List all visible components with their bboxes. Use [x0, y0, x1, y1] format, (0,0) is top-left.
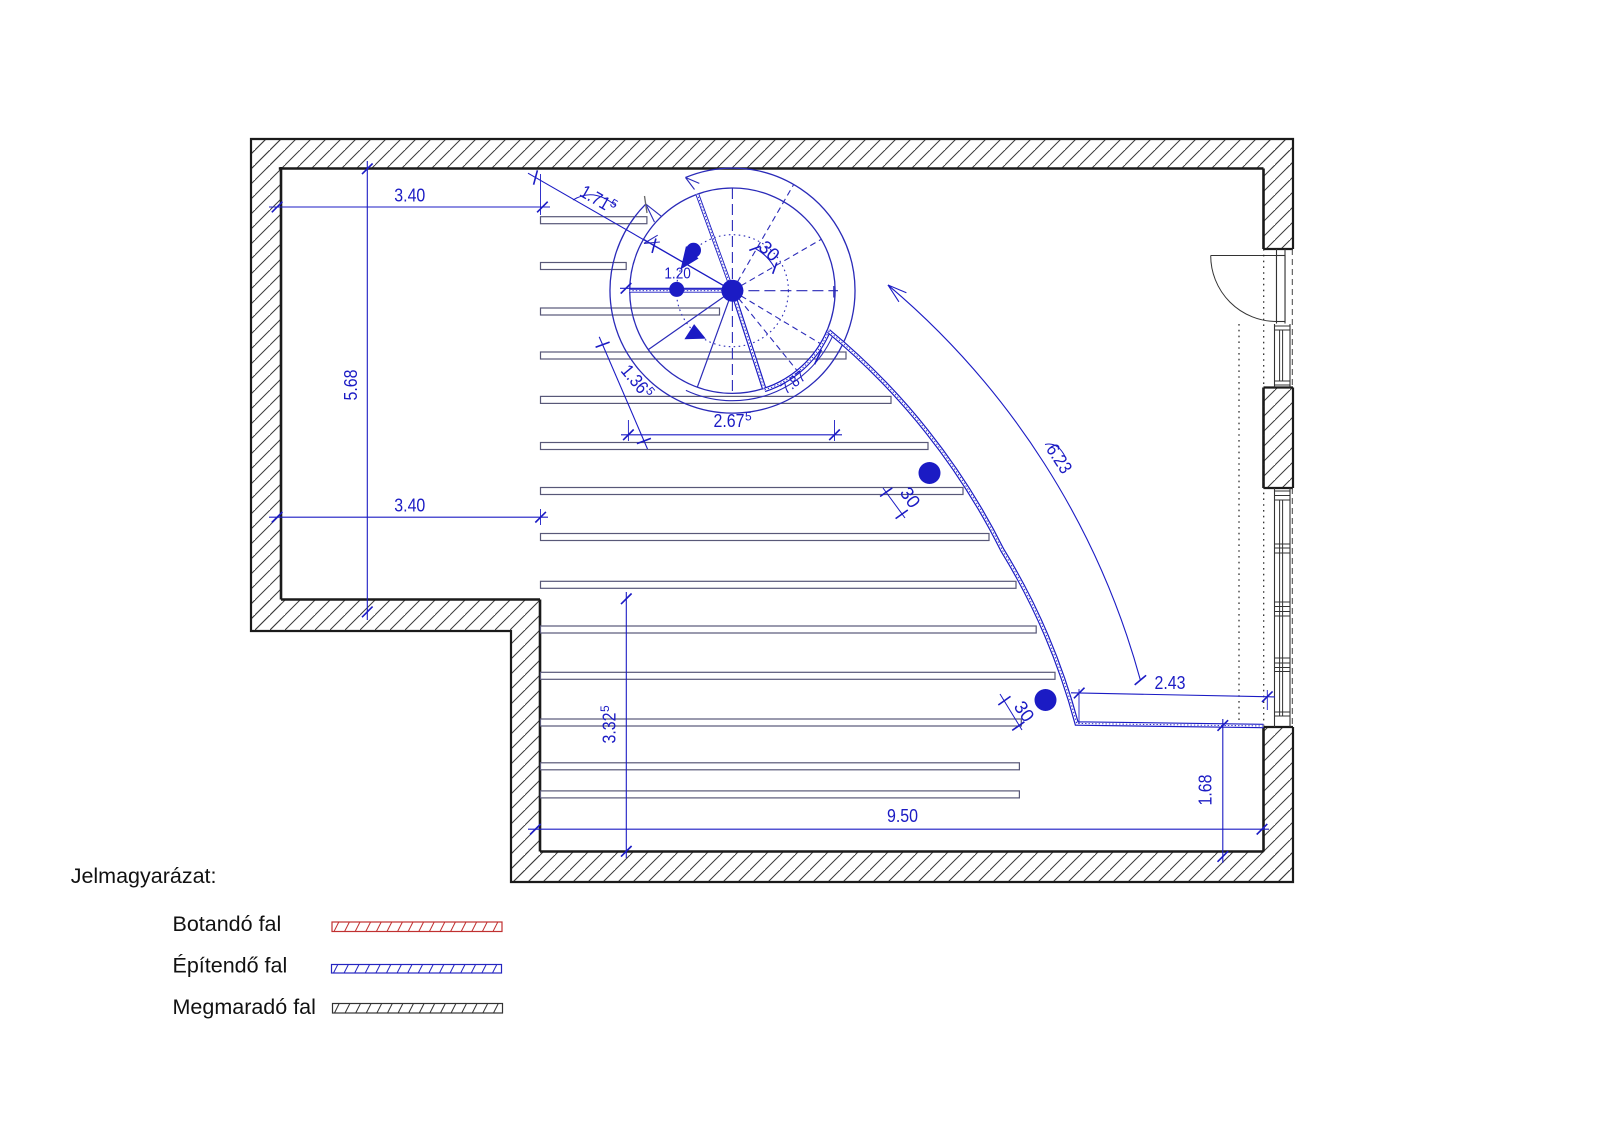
svg-text:5: 5: [745, 410, 752, 424]
svg-text:5: 5: [598, 705, 612, 712]
svg-text:3.32: 3.32: [599, 713, 620, 744]
svg-text:2.67: 2.67: [714, 410, 745, 431]
svg-text:Jelmagyarázat:: Jelmagyarázat:: [71, 864, 217, 888]
svg-text:2.43: 2.43: [1155, 672, 1186, 693]
svg-text:1.68: 1.68: [1195, 775, 1216, 806]
svg-text:3.40: 3.40: [394, 495, 425, 516]
svg-text:1.20: 1.20: [664, 266, 691, 283]
svg-text:Botandó fal: Botandó fal: [173, 912, 282, 936]
svg-text:9.50: 9.50: [887, 805, 918, 826]
svg-text:5.68: 5.68: [340, 370, 361, 401]
svg-text:Megmaradó fal: Megmaradó fal: [173, 995, 316, 1019]
svg-text:Építendő fal: Építendő fal: [173, 953, 288, 978]
svg-text:3.40: 3.40: [394, 185, 425, 206]
